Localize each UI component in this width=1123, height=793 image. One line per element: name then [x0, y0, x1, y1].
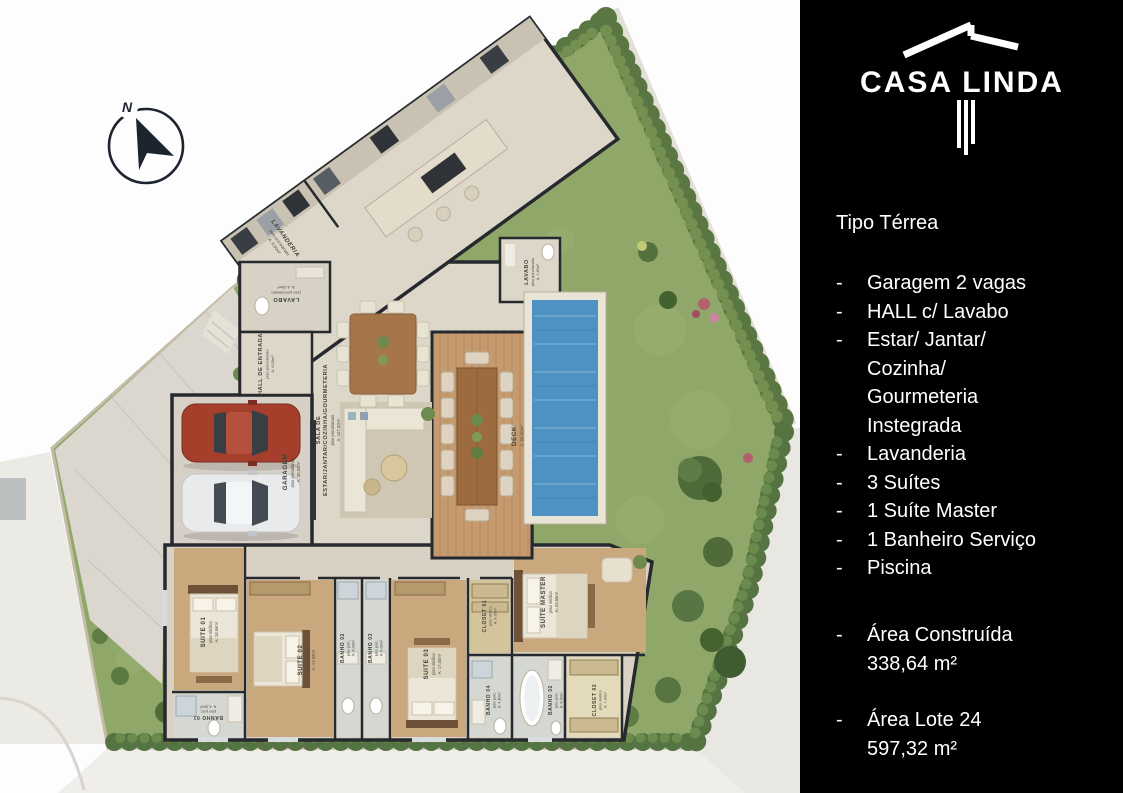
svg-text:A: 22,50m²: A: 22,50m²	[554, 591, 559, 612]
svg-text:A. 107,50m²: A. 107,50m²	[336, 418, 341, 441]
feature-item: Lavanderia	[836, 440, 1096, 469]
svg-text:CLOSET 01: CLOSET 01	[482, 600, 488, 633]
svg-text:piso porc.: piso porc.	[493, 692, 497, 708]
compass-needle	[136, 118, 174, 170]
svg-text:SUITE 02: SUITE 02	[298, 645, 304, 676]
svg-text:piso vinílico: piso vinílico	[599, 690, 603, 710]
svg-text:piso porc.: piso porc.	[200, 710, 216, 714]
brand-name: CASA LINDA	[860, 66, 1064, 99]
svg-text:A. 4,00m²: A. 4,00m²	[277, 285, 295, 290]
brand-logo: CASA LINDA	[800, 0, 1123, 170]
features-list: Garagem 2 vagas HALL c/ Lavabo Estar/ Ja…	[836, 269, 1096, 583]
compass: N	[109, 96, 183, 183]
svg-text:piso porc.: piso porc.	[555, 692, 559, 708]
svg-text:piso porcelanato: piso porcelanato	[330, 414, 335, 445]
dining-table	[350, 314, 416, 394]
page: LAVANDERIA piso porcelanato A. 8,60m²	[0, 0, 1123, 793]
svg-text:A: 4,00m²: A: 4,00m²	[494, 607, 498, 624]
svg-text:piso porcelanato: piso porcelanato	[290, 456, 295, 487]
svg-text:BANHO 02: BANHO 02	[340, 633, 346, 663]
svg-text:A: 17,00m²: A: 17,00m²	[311, 649, 316, 670]
plan-type-label: Tipo Térrea	[836, 212, 938, 235]
pool	[524, 292, 606, 524]
compass-north-label: N	[122, 99, 133, 115]
svg-text:A: 7,00m²: A: 7,00m²	[604, 691, 608, 708]
svg-text:A. 35,50m²: A. 35,50m²	[296, 461, 301, 482]
svg-text:BANHO 04: BANHO 04	[486, 685, 492, 715]
floor-plan-svg: LAVANDERIA piso porcelanato A. 8,60m²	[0, 0, 800, 793]
svg-text:piso vinílico: piso vinílico	[305, 649, 310, 671]
svg-text:LAVABO: LAVABO	[524, 259, 530, 285]
svg-text:ESTAR/JANTAR/COZINHA/GOURMETER: ESTAR/JANTAR/COZINHA/GOURMETERIA	[323, 364, 329, 496]
svg-text:piso porcelanato: piso porcelanato	[271, 291, 301, 296]
svg-text:CLOSET 02: CLOSET 02	[592, 684, 598, 717]
feature-item: HALL c/ Lavabo	[836, 298, 1096, 327]
svg-text:SUÍTE MASTER: SUÍTE MASTER	[539, 576, 547, 628]
svg-text:piso porcelanato: piso porcelanato	[531, 258, 535, 286]
svg-text:DECK: DECK	[511, 426, 518, 446]
svg-text:A: 4,00m²: A: 4,00m²	[352, 639, 356, 656]
svg-text:SUITE 01: SUITE 01	[201, 617, 207, 648]
svg-text:piso vinílico: piso vinílico	[548, 591, 553, 613]
svg-text:piso porc.: piso porc.	[375, 640, 379, 656]
svg-text:BANHO 01: BANHO 01	[193, 714, 223, 720]
svg-text:piso porc.: piso porc.	[347, 640, 351, 656]
svg-text:piso vinílico: piso vinílico	[431, 653, 436, 675]
lot-area: Área Lote 24 597,32 m²	[836, 706, 1096, 763]
info-panel: CASA LINDA Tipo Térrea Garagem 2 vagas H…	[800, 0, 1123, 793]
svg-text:A: 6,00m²: A: 6,00m²	[560, 691, 564, 708]
svg-text:A. 50,00m²: A. 50,00m²	[520, 425, 525, 447]
svg-text:SALA DE: SALA DE	[316, 416, 322, 445]
svg-text:A: 4,00m²: A: 4,00m²	[380, 639, 384, 656]
floor-plan: LAVANDERIA piso porcelanato A. 8,60m²	[0, 0, 800, 793]
feature-item: Piscina	[836, 554, 1096, 583]
roof-icon	[904, 25, 1018, 55]
svg-text:SUITE 03: SUITE 03	[424, 649, 430, 680]
svg-text:piso vinílico: piso vinílico	[489, 606, 493, 626]
svg-text:piso vinílico: piso vinílico	[208, 621, 213, 643]
feature-item: 1 Suíte Master	[836, 497, 1096, 526]
feature-item: 1 Banheiro Serviço	[836, 526, 1096, 555]
logo-bars-icon	[957, 100, 975, 155]
svg-text:A: 4,80m²: A: 4,80m²	[498, 691, 502, 708]
svg-text:LAVABO: LAVABO	[273, 296, 299, 302]
svg-text:A. 6,00m²: A. 6,00m²	[270, 355, 275, 373]
svg-text:piso porcelanato: piso porcelanato	[265, 349, 270, 379]
svg-text:HALL DE ENTRADA: HALL DE ENTRADA	[258, 333, 264, 395]
label-deck: DECK A. 50,00m²	[511, 425, 525, 447]
svg-text:A. 4,30m²: A. 4,30m²	[199, 705, 216, 709]
svg-text:BANHO 02: BANHO 02	[548, 685, 554, 715]
svg-text:GARAGEM: GARAGEM	[282, 454, 289, 491]
living-furniture	[337, 301, 435, 518]
feature-item: Estar/ Jantar/ Cozinha/ Gourmeteria Inst…	[836, 326, 1096, 440]
feature-item: Garagem 2 vagas	[836, 269, 1096, 298]
svg-text:A: 18,65m²: A: 18,65m²	[214, 621, 219, 642]
built-area: Área Construída 338,64 m²	[836, 621, 1096, 678]
svg-text:A: 17,00m²: A: 17,00m²	[437, 653, 442, 674]
svg-text:A. 1,60m²: A. 1,60m²	[536, 263, 540, 280]
svg-text:BANHO 03: BANHO 03	[368, 633, 374, 663]
feature-item: 3 Suítes	[836, 469, 1096, 498]
